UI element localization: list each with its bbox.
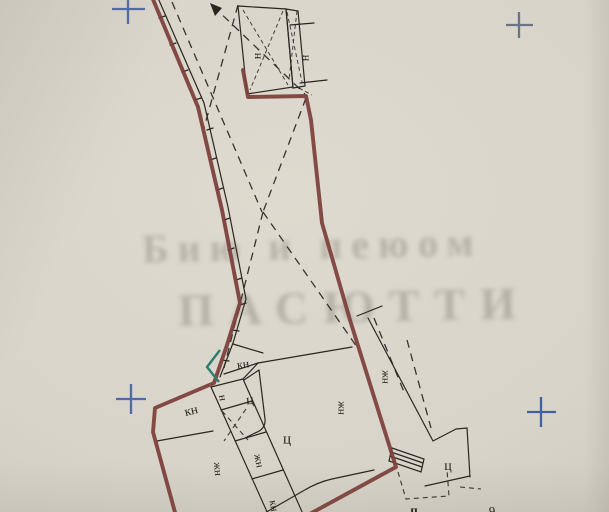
registration-cross-top-left <box>112 0 145 24</box>
parcel-label-c-3: ц <box>444 460 452 474</box>
clipped-label-bottom-1: п <box>410 504 418 512</box>
parcel-label-kn-2: кн <box>183 402 199 418</box>
parcel-label-kn-1: кн <box>236 357 250 371</box>
building-label-n-2: н <box>301 55 313 61</box>
building-label-zhn-2: жн <box>251 453 265 468</box>
building-label-kn-3: кн <box>267 500 280 512</box>
parcel-label-c-2: ц <box>283 433 291 448</box>
building-label-zhn-3: жн <box>336 401 347 415</box>
direction-arrow-icon <box>210 3 222 16</box>
building-label-n-1: н <box>253 53 265 59</box>
registration-cross-mid-left <box>116 384 146 414</box>
clipped-label-bottom-2: 9 <box>489 505 496 512</box>
parcel-lines <box>157 0 470 512</box>
scanned-cadastral-plan: Бию и пеюом ПАСЮТТИ <box>0 0 609 512</box>
parcel-label-c-1: ц <box>246 394 255 409</box>
building-label-zhn-4: жн <box>380 370 391 384</box>
registration-cross-top-right <box>506 12 533 38</box>
building-label-zhn-1: жн <box>211 462 223 476</box>
registration-cross-mid-right <box>527 397 556 427</box>
cadastral-plan-drawing <box>0 0 609 512</box>
